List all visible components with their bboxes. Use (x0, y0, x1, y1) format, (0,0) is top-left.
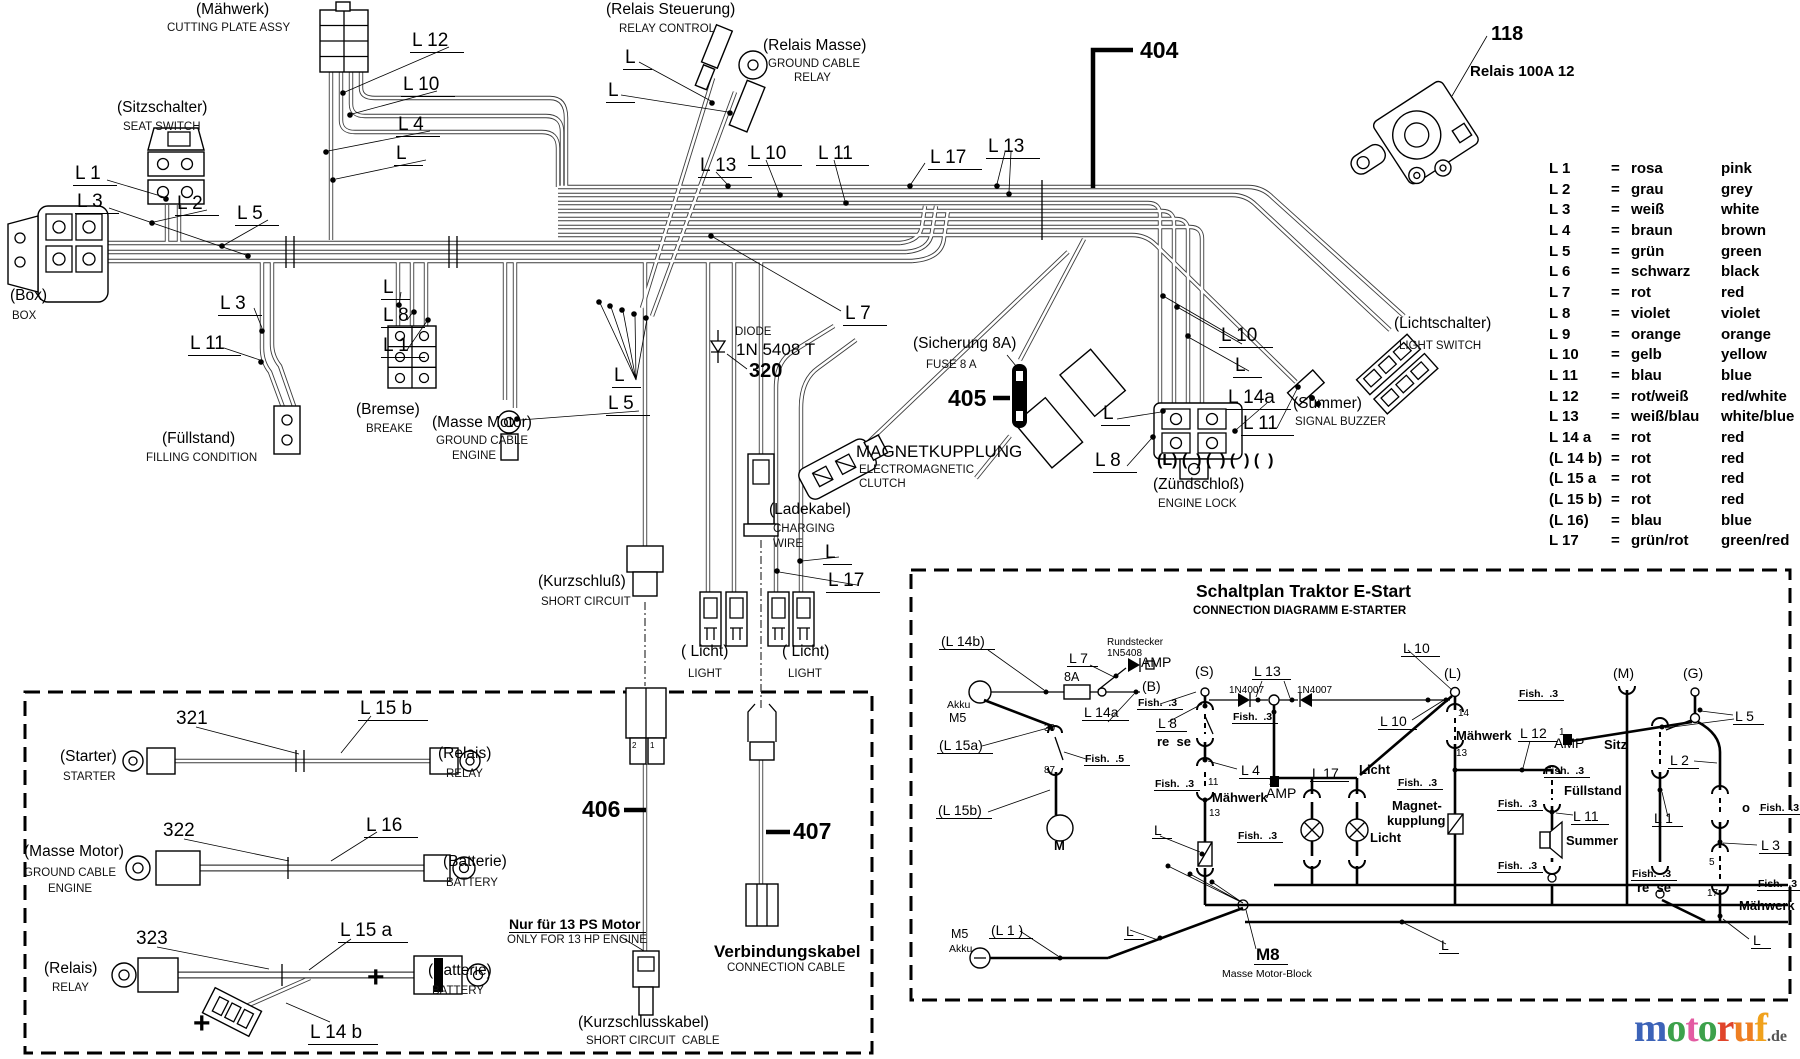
legend-row: L 9 = orange orange (1549, 326, 1794, 347)
schematic-label: Fish. .3 (1544, 766, 1590, 778)
schematic-label: Füllstand (1564, 784, 1622, 798)
legend-color-en: red (1721, 491, 1794, 508)
schematic-label: 13 (1456, 749, 1467, 760)
legend-code: L 13 (1549, 408, 1611, 425)
schematic-label: L 13 (1252, 664, 1291, 680)
schematic-label: (G) (1683, 666, 1703, 681)
motoruf-logo-letters: motoruf (1634, 1004, 1767, 1051)
legend-color-de: gelb (1631, 346, 1721, 363)
legend-code: (L 14 b) (1549, 450, 1611, 467)
legend-color-de: rot (1631, 284, 1721, 301)
legend-color-en: red (1721, 470, 1794, 487)
legend-color-en: grey (1721, 181, 1794, 198)
legend-color-en: green (1721, 243, 1794, 260)
legend-code: L 11 (1549, 367, 1611, 384)
schematic-label: o (1742, 801, 1750, 815)
legend-equals: = (1611, 263, 1631, 280)
schematic-label: L 4 (1239, 763, 1270, 779)
legend-color-de: grün/rot (1631, 532, 1721, 549)
schematic-label: 14 (1458, 709, 1469, 720)
schematic-label: Schaltplan Traktor E-Start (1196, 582, 1411, 600)
legend-row: L 14 a = rot red (1549, 429, 1794, 450)
schematic-label: L 11 (1571, 809, 1609, 825)
schematic-label: (B) (1142, 679, 1161, 694)
schematic-label: CONNECTION DIAGRAMM E-STARTER (1193, 605, 1406, 617)
wiring-diagram-page: (Mähwerk)CUTTING PLATE ASSY(Sitzschalter… (0, 0, 1800, 1059)
legend-row: L 17 = grün/rot green/red (1549, 532, 1794, 553)
schematic-label: 1N5408 (1107, 649, 1142, 660)
legend-color-en: red (1721, 429, 1794, 446)
schematic-label: Mähwerk (1739, 899, 1795, 913)
legend-code: L 4 (1549, 222, 1611, 239)
logo-letter: t (1685, 1004, 1697, 1051)
legend-row: (L 14 b) = rot red (1549, 450, 1794, 471)
schematic-label: Fish. .5 (1084, 754, 1130, 766)
schematic-label: L 5 (1733, 709, 1764, 725)
legend-color-de: braun (1631, 222, 1721, 239)
legend-equals: = (1611, 512, 1631, 529)
legend-color-en: yellow (1721, 346, 1794, 363)
legend-equals: = (1611, 201, 1631, 218)
schematic-label: M8 (1254, 946, 1288, 965)
legend-color-de: rot/weiß (1631, 388, 1721, 405)
schematic-label: L 1 (1652, 811, 1683, 827)
schematic-label: Fish. .3 (1232, 712, 1278, 724)
schematic-label: Fish. .3 (1154, 779, 1200, 791)
motoruf-logo[interactable]: motoruf .de (1634, 1004, 1787, 1051)
schematic-label: Akku (947, 700, 970, 711)
schematic-label: L (1124, 924, 1144, 940)
schematic-label: (S) (1195, 664, 1214, 679)
legend-row: L 2 = grau grey (1549, 181, 1794, 202)
legend-color-en: orange (1721, 326, 1794, 343)
legend-code: L 3 (1549, 201, 1611, 218)
legend-row: (L 16) = blau blue (1549, 512, 1794, 533)
wire-color-legend: L 1 = rosa pink L 2 = grau grey L 3 = we… (1549, 160, 1794, 553)
schematic-label: Fish. .3 (1397, 778, 1443, 790)
legend-color-de: weiß (1631, 201, 1721, 218)
legend-color-en: red (1721, 284, 1794, 301)
schematic-label: 5 (1709, 858, 1715, 869)
legend-color-de: rot (1631, 429, 1721, 446)
legend-code: L 8 (1549, 305, 1611, 322)
schematic-label: L 17 (1310, 766, 1349, 782)
schematic-label: Licht (1359, 763, 1390, 777)
schematic-label: L 8 (1156, 716, 1187, 732)
legend-code: L 9 (1549, 326, 1611, 343)
legend-color-de: grau (1631, 181, 1721, 198)
logo-letter: f (1755, 1004, 1767, 1051)
legend-color-en: red/white (1721, 388, 1794, 405)
schematic-label: L 7 (1067, 651, 1098, 667)
legend-equals: = (1611, 429, 1631, 446)
legend-code: L 1 (1549, 160, 1611, 177)
legend-equals: = (1611, 160, 1631, 177)
legend-equals: = (1611, 222, 1631, 239)
schematic-label: Fish. .3 (1237, 831, 1283, 843)
legend-equals: = (1611, 284, 1631, 301)
schematic-label: L 12 (1518, 726, 1557, 742)
legend-row: L 11 = blau blue (1549, 367, 1794, 388)
legend-row: L 3 = weiß white (1549, 201, 1794, 222)
schematic-label: L 10 (1378, 714, 1417, 730)
logo-letter: m (1634, 1004, 1666, 1051)
legend-color-en: white (1721, 201, 1794, 218)
schematic-label: Mähwerk (1456, 729, 1512, 743)
legend-equals: = (1611, 243, 1631, 260)
schematic-label: (L 1 ) (989, 923, 1033, 939)
legend-code: L 5 (1549, 243, 1611, 260)
logo-letter: o (1698, 1004, 1717, 1051)
schematic-label: Sitz (1604, 738, 1627, 752)
logo-letter: u (1733, 1004, 1754, 1051)
legend-row: L 13 = weiß/blau white/blue (1549, 408, 1794, 429)
legend-color-en: black (1721, 263, 1794, 280)
schematic-label: (L 15b) (936, 803, 992, 819)
schematic-label: 87 (1044, 766, 1055, 777)
legend-color-en: brown (1721, 222, 1794, 239)
schematic-label: Magnet- (1392, 799, 1442, 813)
legend-color-de: blau (1631, 512, 1721, 529)
schematic-label: Summer (1566, 834, 1618, 848)
legend-color-de: violet (1631, 305, 1721, 322)
legend-color-en: blue (1721, 367, 1794, 384)
legend-row: L 12 = rot/weiß red/white (1549, 388, 1794, 409)
legend-code: L 12 (1549, 388, 1611, 405)
schematic-label: Licht (1370, 831, 1401, 845)
legend-color-de: rosa (1631, 160, 1721, 177)
legend-row: L 5 = grün green (1549, 243, 1794, 264)
legend-equals: = (1611, 470, 1631, 487)
legend-color-de: rot (1631, 491, 1721, 508)
schematic-label: (L 14b) (939, 634, 995, 650)
legend-row: L 7 = rot red (1549, 284, 1794, 305)
schematic-label: L (1439, 938, 1459, 954)
legend-color-en: red (1721, 450, 1794, 467)
legend-color-en: pink (1721, 160, 1794, 177)
legend-row: L 1 = rosa pink (1549, 160, 1794, 181)
schematic-label: L 10 (1401, 641, 1440, 657)
legend-code: L 14 a (1549, 429, 1611, 446)
schematic-label: 11 (1208, 778, 1218, 789)
schematic-label: kupplung (1387, 814, 1446, 828)
legend-row: L 6 = schwarz black (1549, 263, 1794, 284)
schematic-label: re se (1157, 735, 1191, 749)
legend-equals: = (1611, 326, 1631, 343)
schematic-label: M5 (951, 928, 968, 941)
legend-equals: = (1611, 181, 1631, 198)
legend-code: (L 16) (1549, 512, 1611, 529)
legend-code: L 17 (1549, 532, 1611, 549)
schematic-label: Masse Motor-Block (1222, 969, 1312, 980)
schematic-label: Akku (949, 944, 972, 955)
legend-row: (L 15 b) = rot red (1549, 491, 1794, 512)
legend-equals: = (1611, 408, 1631, 425)
schematic-label: (L) (1444, 666, 1461, 681)
legend-color-de: rot (1631, 450, 1721, 467)
legend-equals: = (1611, 346, 1631, 363)
legend-code: L 6 (1549, 263, 1611, 280)
schematic-label: Mähwerk (1212, 791, 1268, 805)
schematic-label: L (1152, 823, 1172, 839)
legend-code: L 7 (1549, 284, 1611, 301)
legend-equals: = (1611, 388, 1631, 405)
schematic-label: 30 (1044, 724, 1055, 735)
legend-color-de: blau (1631, 367, 1721, 384)
schematic-label: Fish. .3 (1497, 799, 1543, 811)
schematic-label: L 3 (1759, 838, 1790, 854)
legend-color-de: grün (1631, 243, 1721, 260)
schematic-label: (L 15a) (937, 738, 993, 754)
legend-code: L 2 (1549, 181, 1611, 198)
schematic-labels: Schaltplan Traktor E-StartCONNECTION DIA… (0, 0, 1800, 1059)
schematic-label: L 2 (1668, 753, 1699, 769)
legend-color-de: rot (1631, 470, 1721, 487)
legend-code: (L 15 b) (1549, 491, 1611, 508)
legend-equals: = (1611, 491, 1631, 508)
legend-color-de: schwarz (1631, 263, 1721, 280)
legend-row: L 10 = gelb yellow (1549, 346, 1794, 367)
legend-row: (L 15 a = rot red (1549, 470, 1794, 491)
schematic-label: AMP (1141, 655, 1171, 670)
schematic-label: AMP (1554, 736, 1584, 751)
schematic-label: Fish. .3 (1759, 803, 1800, 815)
legend-equals: = (1611, 532, 1631, 549)
logo-letter: r (1717, 1004, 1734, 1051)
legend-row: L 8 = violet violet (1549, 305, 1794, 326)
legend-color-en: white/blue (1721, 408, 1794, 425)
schematic-label: Fish. .3 (1137, 698, 1183, 710)
schematic-label: L 14a (1082, 705, 1129, 721)
schematic-label: 1N4007 (1229, 686, 1264, 697)
legend-code: L 10 (1549, 346, 1611, 363)
logo-suffix: .de (1767, 1028, 1787, 1046)
schematic-label: (M) (1613, 666, 1634, 681)
schematic-label: Rundstecker (1107, 638, 1163, 649)
schematic-label: M (1054, 839, 1065, 853)
legend-equals: = (1611, 367, 1631, 384)
schematic-label: 1N4007 (1297, 686, 1332, 697)
schematic-label: AMP (1266, 786, 1296, 801)
legend-color-en: blue (1721, 512, 1794, 529)
schematic-label: L (1751, 933, 1771, 949)
legend-color-en: violet (1721, 305, 1794, 322)
schematic-label: 13 (1209, 809, 1220, 820)
legend-equals: = (1611, 305, 1631, 322)
schematic-label: M5 (949, 712, 966, 725)
schematic-label: Fish. .3 (1497, 861, 1543, 873)
legend-color-de: orange (1631, 326, 1721, 343)
legend-color-de: weiß/blau (1631, 408, 1721, 425)
schematic-label: re se (1637, 881, 1671, 895)
schematic-label: 8A (1064, 671, 1079, 684)
legend-code: (L 15 a (1549, 470, 1611, 487)
schematic-label: Fish. .3 (1757, 879, 1800, 891)
legend-row: L 4 = braun brown (1549, 222, 1794, 243)
schematic-label: Fish. .3 (1518, 689, 1564, 701)
logo-letter: o (1666, 1004, 1685, 1051)
legend-equals: = (1611, 450, 1631, 467)
schematic-label: 17 (1707, 889, 1718, 900)
legend-color-en: green/red (1721, 532, 1794, 549)
